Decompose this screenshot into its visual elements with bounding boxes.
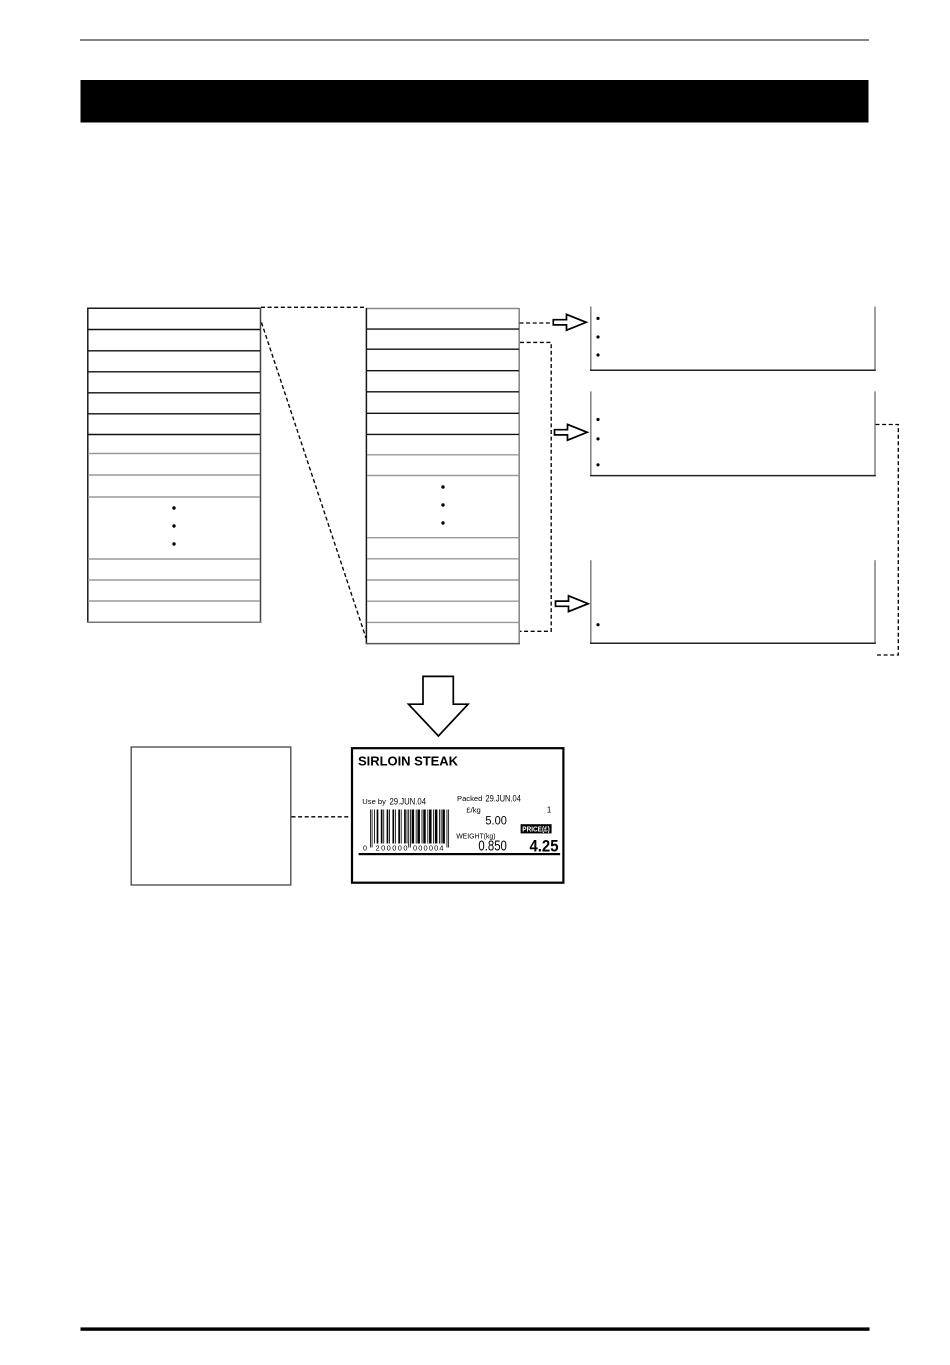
svg-text:1: 1 — [547, 805, 552, 814]
svg-text:5.00: 5.00 — [485, 815, 507, 827]
svg-text:0.850: 0.850 — [478, 839, 507, 855]
svg-text:29.JUN.04: 29.JUN.04 — [485, 793, 521, 803]
svg-text:Use by: Use by — [362, 797, 386, 806]
svg-text:SIRLOIN STEAK: SIRLOIN STEAK — [358, 754, 459, 769]
svg-text:000004: 000004 — [413, 844, 444, 853]
svg-text:29.JUN.04: 29.JUN.04 — [390, 796, 427, 806]
svg-text:200000: 200000 — [376, 844, 408, 853]
svg-text:Packed: Packed — [457, 794, 482, 803]
svg-text:0: 0 — [363, 844, 367, 853]
svg-text:£/kg: £/kg — [466, 805, 480, 814]
svg-text:4.25: 4.25 — [530, 837, 559, 855]
svg-text:PRICE(£): PRICE(£) — [522, 827, 550, 834]
